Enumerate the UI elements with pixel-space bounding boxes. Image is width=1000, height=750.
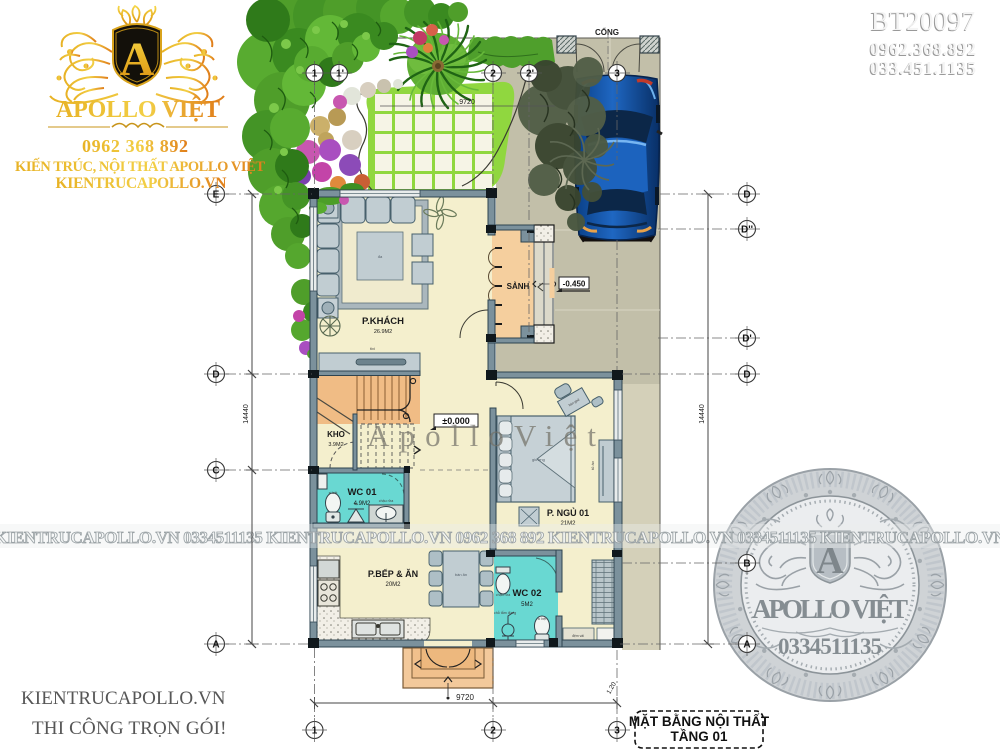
svg-text:3.9M2: 3.9M2 (328, 442, 343, 448)
svg-text:14440: 14440 (243, 404, 250, 424)
svg-text:C: C (212, 466, 219, 477)
svg-text:P.BẾP & ĂN: P.BẾP & ĂN (368, 569, 418, 579)
svg-text:D: D (743, 370, 750, 381)
svg-text:033.451.1135: 033.451.1135 (870, 58, 976, 78)
svg-text:chậu rửa: chậu rửa (496, 593, 510, 597)
svg-text:xí bệt: xí bệt (329, 491, 338, 495)
svg-text:26.9M2: 26.9M2 (374, 329, 392, 335)
svg-text:3: 3 (614, 726, 620, 737)
svg-text:D: D (743, 190, 750, 201)
svg-text:APOLLO VIỆT: APOLLO VIỆT (56, 97, 220, 123)
svg-text:A: A (212, 640, 219, 651)
svg-text:A: A (120, 33, 155, 86)
svg-text:0334511135: 0334511135 (778, 634, 882, 659)
svg-text:0962 368 892: 0962 368 892 (82, 136, 188, 156)
svg-text:WC 02: WC 02 (512, 588, 541, 599)
svg-text:KIENTRUCAPOLLO.VN: KIENTRUCAPOLLO.VN (21, 688, 227, 709)
svg-text:B: B (743, 559, 750, 570)
svg-text:KIẾN TRÚC, NỘI THẤT APOLLO VIỆ: KIẾN TRÚC, NỘI THẤT APOLLO VIỆT (15, 158, 265, 175)
svg-text:1: 1 (312, 726, 318, 737)
svg-text:2: 2 (490, 726, 496, 737)
svg-text:D': D' (742, 334, 752, 345)
svg-text:P. NGỦ 01: P. NGỦ 01 (547, 507, 589, 518)
svg-text:đệm vải: đệm vải (572, 634, 584, 638)
svg-text:A: A (743, 640, 750, 651)
svg-text:APOLLO VIỆT: APOLLO VIỆT (752, 594, 908, 624)
svg-text:xí bệt: xí bệt (538, 617, 547, 621)
svg-text:3: 3 (614, 69, 620, 80)
svg-text:chỗ tắm đứng: chỗ tắm đứng (494, 610, 516, 615)
svg-text:BT20097: BT20097 (871, 6, 975, 36)
svg-text:KIENTRUCAPOLLO.VN: KIENTRUCAPOLLO.VN (56, 175, 227, 192)
svg-text:4.9M2: 4.9M2 (354, 501, 371, 507)
svg-text:bàn ăn: bàn ăn (455, 572, 467, 577)
svg-text:1': 1' (336, 69, 344, 80)
svg-text:giường: giường (532, 457, 545, 462)
svg-text:TẦNG 01: TẦNG 01 (670, 729, 728, 744)
svg-text:KIENTRUCAPOLLO.VN 0334511135: KIENTRUCAPOLLO.VN 0334511135 KIENTRUCAPO… (0, 528, 1000, 547)
svg-text:0962.368.892: 0962.368.892 (870, 39, 976, 59)
svg-text:5M2: 5M2 (521, 602, 533, 608)
svg-text:9720: 9720 (459, 99, 475, 106)
svg-text:20M2: 20M2 (385, 582, 401, 588)
svg-text:9720: 9720 (456, 693, 474, 702)
svg-text:đa: đa (378, 254, 383, 259)
svg-text:D: D (212, 370, 219, 381)
svg-text:-0.450: -0.450 (563, 280, 586, 289)
svg-text:WC 01: WC 01 (347, 487, 377, 498)
svg-text:THI CÔNG TRỌN GÓI!: THI CÔNG TRỌN GÓI! (32, 717, 228, 739)
svg-text:2: 2 (490, 69, 496, 80)
svg-text:1: 1 (312, 69, 318, 80)
svg-text:chậu rửa: chậu rửa (379, 499, 393, 503)
svg-text:SẢNH: SẢNH (507, 282, 530, 291)
svg-text:CỔNG: CỔNG (595, 28, 619, 37)
svg-text:tivi: tivi (370, 346, 375, 351)
svg-text:D'': D'' (741, 225, 753, 236)
svg-text:tủ áo: tủ áo (590, 460, 595, 470)
svg-text:P.KHÁCH: P.KHÁCH (362, 316, 404, 327)
svg-text:14440: 14440 (699, 404, 706, 424)
svg-text:MẶT BẰNG NỘI THẤT: MẶT BẰNG NỘI THẤT (629, 714, 770, 729)
svg-text:2': 2' (526, 69, 534, 80)
svg-text:KHO: KHO (327, 430, 345, 439)
